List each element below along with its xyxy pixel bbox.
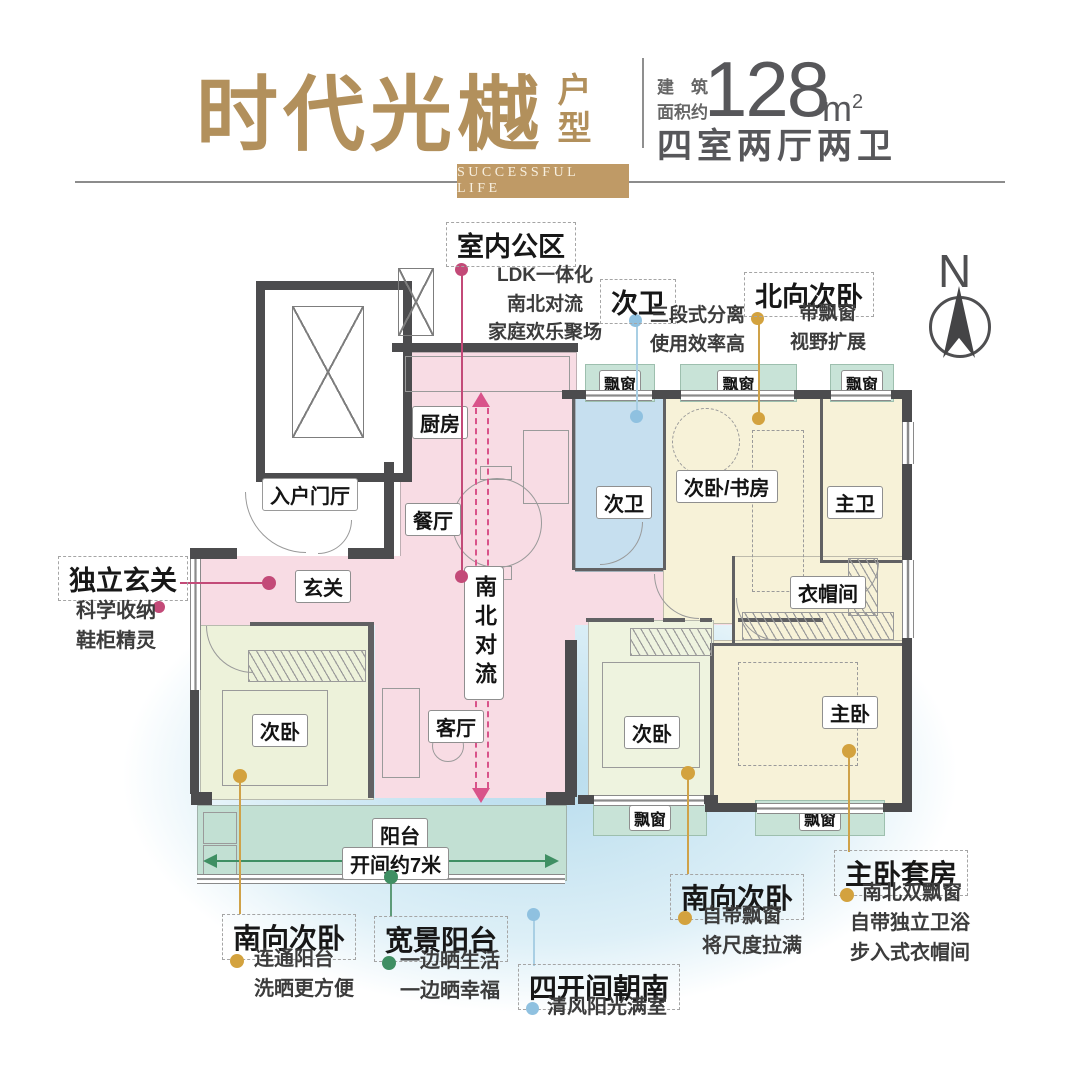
callout-lines-wide-balcony: 一边晒生活 一边晒幸福 (400, 946, 500, 1006)
partition (820, 398, 823, 562)
airflow-arrow-up-icon (472, 392, 490, 407)
room-label-bedroom-south: 次卧 (624, 716, 680, 749)
stove-icon (523, 430, 569, 504)
callout-title-entry-hall: 独立玄关 (58, 556, 188, 601)
room-label-dining: 餐厅 (405, 503, 461, 536)
room-label-study-bedroom: 次卧/书房 (676, 470, 778, 503)
partition (732, 556, 735, 646)
room-label-master-bath: 主卫 (827, 486, 883, 519)
callout-lines-south-bedroom-left: 连通阳台 洗晒更方便 (254, 944, 354, 1004)
callout-lines-south-bedroom-right: 自带飘窗 将尺度拉满 (702, 901, 802, 961)
wall-segment (190, 548, 237, 559)
callout-line-entry-hall (180, 582, 264, 584)
callout-line-north-bedroom (758, 320, 760, 414)
room-label-master-bedroom: 主卧 (822, 696, 878, 729)
bay-window-label: 飘窗 (629, 805, 671, 831)
callout-dot (384, 870, 398, 884)
callout-line-master-suite (848, 756, 850, 852)
layout-description: 四室两厅两卫 (657, 118, 897, 169)
callout-dot (842, 744, 856, 758)
callout-dot (455, 570, 468, 583)
callout-line-second-bath (636, 322, 638, 412)
window (902, 560, 914, 638)
partition (710, 643, 714, 803)
wall-segment (565, 640, 577, 797)
header-divider (642, 58, 644, 148)
room-master-bath (820, 398, 907, 564)
partition (575, 568, 663, 571)
callout-line-text: 洗晒更方便 (254, 974, 354, 1004)
compass-north-label: N (938, 244, 971, 298)
airflow-arrow-down-icon (472, 788, 490, 803)
wall-segment (562, 390, 586, 399)
wall-segment (652, 390, 681, 399)
sofa-icon (382, 688, 420, 778)
callout-line-south-bedroom-right (687, 778, 689, 874)
callout-line-text: 使用效率高 (650, 331, 745, 360)
callout-line-text: 清风阳光满室 (547, 992, 667, 1022)
duct-shaft-icon (398, 268, 434, 336)
window (190, 559, 201, 690)
washer-icon (203, 812, 237, 844)
room-label-hallway: 玄关 (295, 570, 351, 603)
room-label-entry-foyer: 入户门厅 (262, 478, 358, 511)
callout-title-indoor-public: 室内公区 (446, 222, 576, 267)
callout-dot (681, 766, 695, 780)
callout-line-text: 一边晒幸福 (400, 976, 500, 1006)
callout-line-text: 视野扩展 (768, 329, 888, 358)
callout-dot (527, 908, 540, 921)
callout-line-four-bays-south (533, 918, 535, 966)
room-label-closet: 衣帽间 (790, 576, 866, 609)
callout-lines-north-bedroom: 带飘窗 视野扩展 (768, 300, 888, 357)
page-title-suffix: 户型 (546, 72, 595, 148)
wall-segment (902, 638, 912, 812)
wall-segment (794, 390, 831, 399)
partition (250, 622, 372, 626)
partition (663, 398, 666, 570)
callout-dot (382, 956, 396, 970)
callout-dot (230, 954, 244, 968)
area-label-line1: 建 筑 (657, 76, 708, 101)
callout-line-text: 自带飘窗 (702, 901, 802, 931)
wall-segment (384, 462, 394, 558)
wall-segment (190, 690, 199, 794)
area-unit-exp: 2 (852, 91, 863, 113)
elevator-cab-icon (292, 306, 364, 438)
room-label-living: 客厅 (428, 710, 484, 743)
page-title: 时代光樾 (196, 48, 544, 167)
wall-segment (902, 464, 912, 560)
wall-segment (902, 390, 912, 422)
callout-line-south-bedroom-left (239, 780, 241, 914)
callout-line-text: 步入式衣帽间 (850, 938, 970, 968)
callout-dot (752, 412, 765, 425)
callout-line-text: 科学收纳 (76, 596, 156, 626)
window (586, 390, 652, 401)
callout-lines-second-bath: 三段式分离 使用效率高 (650, 302, 745, 359)
wall-segment (883, 803, 912, 812)
room-label-kitchen: 厨房 (412, 406, 468, 439)
callout-lines-entry-hall: 科学收纳 鞋柜精灵 (76, 596, 156, 656)
bed-icon (602, 662, 700, 768)
callout-line-text: 一边晒生活 (400, 946, 500, 976)
callout-dot (262, 576, 276, 590)
callout-dot (526, 1002, 539, 1015)
callout-line-text: 带飘窗 (768, 300, 888, 329)
callout-line-text: 鞋柜精灵 (76, 626, 156, 656)
callout-lines-master-suite: 南北双飘窗 自带独立卫浴 步入式衣帽间 (850, 878, 970, 968)
dimension-arrow-left-icon (203, 854, 217, 868)
wall-segment (704, 795, 718, 804)
callout-line-text: 连通阳台 (254, 944, 354, 974)
window (831, 390, 891, 401)
window (757, 803, 883, 814)
callout-dot (233, 769, 247, 783)
partition (700, 618, 712, 622)
callout-line-text: 三段式分离 (650, 302, 745, 331)
kitchen-counter-icon (405, 356, 570, 392)
callout-lines-four-bays-south: 清风阳光满室 (547, 992, 667, 1022)
room-label-second-bath: 次卫 (596, 486, 652, 519)
partition (586, 618, 654, 622)
wall-segment (705, 803, 757, 812)
desk-icon (752, 430, 804, 592)
wall-segment (578, 795, 594, 804)
airflow-label: 南北对流 (464, 566, 504, 700)
dimension-arrow-right-icon (545, 854, 559, 868)
window (681, 390, 794, 401)
wardrobe-icon (248, 650, 366, 682)
partition (712, 643, 905, 646)
wardrobe-icon (630, 628, 712, 656)
partition (663, 618, 685, 622)
partition (368, 622, 374, 798)
room-label-bedroom-left: 次卧 (252, 714, 308, 747)
closet-hatch-icon (742, 612, 894, 640)
partition (572, 398, 575, 570)
callout-dot (678, 911, 692, 925)
callout-line-text: 自带独立卫浴 (850, 908, 970, 938)
slogan-banner: SUCCESSFUL LIFE (457, 164, 629, 198)
study-sofa-icon (672, 408, 740, 476)
callout-line-text: 南北双飘窗 (850, 878, 970, 908)
callout-dot (630, 410, 643, 423)
callout-line-wide-balcony (390, 882, 392, 916)
callout-line-text: 将尺度拉满 (702, 931, 802, 961)
window (902, 422, 914, 464)
